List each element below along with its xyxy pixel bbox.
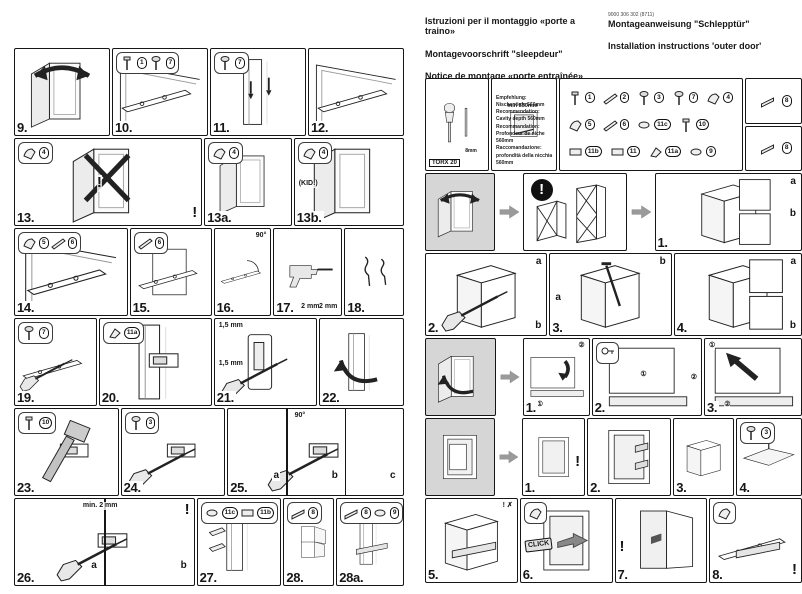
annotation: ! [620, 539, 625, 556]
illustration [17, 51, 107, 133]
step-number: 13. [17, 211, 36, 225]
step-box-26: min. 2 mm!ab26. [14, 498, 195, 586]
step-box-13a: 413a. [204, 138, 292, 226]
step-box-15: 615. [130, 228, 212, 316]
annotation: ! [97, 175, 102, 192]
step-row: ! ✗5.CLICK6.!7.!8. [425, 498, 802, 583]
part-inset: 17 [116, 52, 179, 74]
part-item: 1 [568, 90, 595, 106]
part-inset [524, 502, 547, 524]
step-box-1: ②①1. [523, 338, 590, 416]
part-inset: 89 [340, 502, 403, 524]
screw-icon [672, 90, 687, 106]
step-number: 11. [213, 121, 231, 135]
part-number-badge: 9 [706, 146, 716, 158]
step-row: ②①1.①②2.①②3. [425, 338, 802, 416]
step-number: 3. [707, 401, 719, 415]
step-number: 24. [124, 481, 143, 495]
side-part-box: 8 [745, 78, 802, 124]
recommendation-line: Recommendation: Cavity depth 560mm [496, 109, 553, 124]
part-inset: 11a [103, 322, 145, 344]
part-number-badge: 8 [782, 142, 792, 154]
panel-divider [104, 499, 106, 585]
part-item: 8 [756, 93, 792, 109]
part-number-badge: 3 [654, 92, 664, 104]
strip-icon [291, 505, 306, 521]
part-number-badge: 7 [39, 327, 49, 339]
bracket-icon [212, 145, 227, 161]
intro-box [425, 173, 495, 251]
part-number-badge: 11b [585, 146, 602, 158]
pin-icon [679, 117, 694, 133]
step-box-7: !7. [615, 498, 708, 583]
step-number: 20. [102, 391, 121, 405]
part-item: 11c [637, 117, 671, 133]
rail-icon [138, 235, 153, 251]
warning-box: ! [523, 173, 627, 251]
part-number-badge: 1 [137, 57, 147, 69]
pin-icon [120, 55, 135, 71]
illustration [428, 341, 493, 413]
step-row: 1023.324.90°abc25. [14, 408, 404, 496]
cap-icon [689, 144, 704, 160]
torx-screwdriver-icon [428, 81, 486, 168]
step-number: 2. [590, 481, 602, 495]
step-box-12: 12. [308, 48, 404, 136]
annotation: ① [640, 371, 646, 379]
pin-icon [568, 90, 583, 106]
part-inset: 3 [740, 422, 775, 444]
parts-overview-box: 123745611c1011b1111a9 [559, 78, 744, 171]
step-box-11: 711. [210, 48, 306, 136]
step-box-20: 11a20. [99, 318, 212, 406]
illustration [677, 256, 799, 333]
step-number: 10. [115, 121, 134, 135]
part-item: 11b [568, 144, 602, 160]
niche-dimensions-box: min 550mmEmpfehlung: Nischentiefe 560mmR… [491, 78, 557, 171]
cap-icon [373, 505, 388, 521]
recommendation-line: Recommandation: Profondeur de niche 560m… [496, 124, 553, 146]
part-number-badge: 1 [585, 92, 595, 104]
slider-icon [610, 144, 625, 160]
pin-icon [22, 415, 37, 431]
part-item: 9 [689, 144, 716, 160]
part-number-badge: 11c [222, 507, 239, 519]
header: Istruzioni per il montaggio «porte a tra… [425, 12, 802, 78]
step-box-28a: 8928a. [336, 498, 404, 586]
step-box-1: ab1. [655, 173, 802, 251]
part-number-badge: 4 [319, 147, 329, 159]
sub-panel-label: a [272, 471, 280, 481]
sub-panel-label: a [554, 293, 562, 303]
part-inset: 11c11b [201, 502, 278, 524]
step-box-4: ab4. [674, 253, 802, 336]
step-row: TORX 208mmmin 550mmEmpfehlung: Nischenti… [425, 78, 802, 171]
step-number: 14. [17, 301, 36, 315]
step-row: 719.11a20.1,5 mm1,5 mm21.22. [14, 318, 404, 406]
block-arrow-right-icon [629, 173, 653, 251]
step-box-2: ab2. [425, 253, 547, 336]
step-number: 22. [322, 391, 341, 405]
illustration [428, 176, 492, 248]
part-item: 3 [637, 90, 664, 106]
step-number: 13a. [207, 211, 233, 225]
right-page: Istruzioni per il montaggio «porte a tra… [425, 12, 802, 585]
sub-panel-label: a [535, 257, 543, 267]
step-number: 26. [17, 571, 36, 585]
bracket-icon [22, 235, 37, 251]
sub-panel-label: b [534, 321, 542, 331]
step-number: 7. [618, 568, 630, 582]
illustration [707, 341, 799, 413]
bracket-icon [706, 90, 721, 106]
step-box-3: ab3. [549, 253, 671, 336]
screw-icon [744, 425, 759, 441]
part-number-badge: 3 [761, 427, 771, 439]
annotation: ! [575, 454, 580, 471]
step-box-5: ! ✗5. [425, 498, 518, 583]
strip-icon [344, 505, 359, 521]
step-box-10: 1710. [112, 48, 208, 136]
step-number: 5. [428, 568, 440, 582]
part-number-badge: 8 [782, 95, 792, 107]
parts-grid: 123745611c1011b1111a9 [562, 81, 741, 168]
sub-panel-label: b [789, 321, 797, 331]
illustration [428, 256, 544, 333]
part-number-badge: 7 [689, 92, 699, 104]
step-number: 27. [200, 571, 219, 585]
step-box-25: 90°abc25. [227, 408, 404, 496]
sub-panel-label: b [659, 257, 667, 267]
step-box-8: !8. [709, 498, 802, 583]
step-number: 3. [676, 481, 688, 495]
sub-panel-label: a [789, 177, 797, 187]
title-italian: Istruzioni per il montaggio «porte a tra… [425, 16, 605, 37]
cap-icon [205, 505, 220, 521]
part-number-badge: 8 [308, 507, 318, 519]
step-number: 4. [739, 481, 751, 495]
recommendation-line: Raccomandazione: profondità della nicchi… [496, 145, 553, 167]
bracket-icon [528, 505, 543, 521]
part-number-badge: 11 [627, 146, 640, 158]
sub-panel-label: b [180, 561, 188, 571]
right-page-steps: TORX 208mmmin 550mmEmpfehlung: Nischenti… [425, 78, 802, 583]
step-row: !1.2.3.34. [425, 418, 802, 496]
part-number-badge: 3 [146, 417, 156, 429]
part-item: 6 [603, 117, 630, 133]
step-number: 16. [217, 301, 236, 315]
step-number: 6. [523, 568, 535, 582]
step-number: 18. [347, 301, 366, 315]
screw-icon [637, 90, 652, 106]
sub-panel-label: c [389, 471, 397, 481]
step-row: !ab1. [425, 173, 802, 251]
part-inset [596, 342, 619, 364]
step-box-3: 3. [673, 418, 734, 496]
title-dutch: Montagevoorschrift "sleepdeur" [425, 49, 605, 59]
part-item: 7 [672, 90, 699, 106]
annotation: 1,5 mm [219, 322, 243, 330]
annotation: 90° [295, 412, 306, 420]
annotation: 90° [256, 232, 267, 240]
step-box-23: 1023. [14, 408, 119, 496]
step-number: 13b. [297, 211, 324, 225]
annotation: min. 2 mm [83, 502, 118, 510]
part-number-badge: 4 [229, 147, 239, 159]
bit-size-label: 8mm [465, 148, 477, 154]
side-part-box: 8 [745, 126, 802, 172]
step-number: 25. [230, 481, 249, 495]
illustration [230, 411, 401, 493]
part-inset: 10 [18, 412, 56, 434]
document-code: 9000 306 302 (8711) [608, 12, 802, 18]
part-number-badge: 6 [620, 119, 630, 131]
intro-box [425, 338, 496, 416]
screw-icon [22, 325, 37, 341]
panel-divider [286, 409, 288, 495]
step-number: 21. [217, 391, 236, 405]
header-right-column: 9000 306 302 (8711) Montageanweisung "Sc… [608, 12, 802, 64]
left-page: 9.1710.711.12.4!!13.413a.4(KID!)13b.5614… [14, 48, 404, 588]
part-number-badge: 7 [235, 57, 245, 69]
rail-icon [51, 235, 66, 251]
panel-divider [345, 409, 347, 495]
step-row: ab2.ab3.ab4. [425, 253, 802, 336]
part-number-badge: 6 [68, 237, 78, 249]
part-item: 10 [679, 117, 709, 133]
step-number: 12. [311, 121, 330, 135]
part-number-badge: 4 [723, 92, 733, 104]
part-number-badge: 5 [585, 119, 595, 131]
part-inset: 6 [134, 232, 169, 254]
intro-box [425, 418, 495, 496]
annotation: ② [691, 374, 697, 382]
annotation: ! [185, 502, 190, 519]
step-box-24: 324. [121, 408, 226, 496]
block-arrow-right-icon [498, 338, 521, 416]
screw-icon [149, 55, 164, 71]
step-number: 2. [428, 321, 440, 335]
parts-side-column: 88 [745, 78, 802, 171]
part-inset: 7 [18, 322, 53, 344]
part-inset: 56 [18, 232, 81, 254]
step-number: 1. [526, 401, 538, 415]
step-number: 4. [677, 321, 689, 335]
part-number-badge: 11b [257, 507, 274, 519]
step-box-22: 22. [319, 318, 404, 406]
part-number-badge: 11a [124, 327, 141, 339]
part-inset: 8 [287, 502, 322, 524]
step-box-1: !1. [522, 418, 585, 496]
step-number: 1. [658, 236, 670, 250]
step-row: 9.1710.711.12. [14, 48, 404, 136]
step-box-6: CLICK6. [520, 498, 613, 583]
annotation: 2 mm [319, 303, 337, 311]
part-number-badge: 2 [620, 92, 630, 104]
annotation: 1,5 mm [219, 360, 243, 368]
part-number-badge: 11c [654, 119, 671, 131]
step-row: 4!!13.413a.4(KID!)13b. [14, 138, 404, 226]
part-item: 5 [568, 117, 595, 133]
annotation: ② [578, 342, 584, 350]
part-number-badge: 5 [39, 237, 49, 249]
sub-panel-label: b [789, 209, 797, 219]
slider-icon [568, 144, 583, 160]
sub-panel-label: b [331, 471, 339, 481]
screw-icon [129, 415, 144, 431]
illustration [428, 421, 492, 493]
step-box-14: 5614. [14, 228, 128, 316]
title-german: Montageanweisung "Schlepptür" [608, 19, 802, 29]
illustration [552, 256, 668, 333]
step-row: 5614.615.90°16.2 mm2 mm17.18. [14, 228, 404, 316]
annotation: ① [709, 342, 715, 350]
part-item: 11a [648, 144, 682, 160]
step-number: 2. [595, 401, 607, 415]
step-number: 28a. [339, 571, 365, 585]
rail-icon [603, 117, 618, 133]
part-number-badge: 10 [696, 119, 709, 131]
bracket-icon [22, 145, 37, 161]
part-item: 4 [706, 90, 733, 106]
step-row: min. 2 mm!ab26.11c11b27.828.8928a. [14, 498, 404, 586]
bracket-icon [717, 505, 732, 521]
tool-label: TORX 20 [429, 159, 460, 167]
annotation: (KID!) [299, 180, 318, 188]
step-number: 8. [712, 568, 724, 582]
step-box-17: 2 mm2 mm17. [273, 228, 342, 316]
block-arrow-right-icon [497, 173, 521, 251]
part-number-badge: 10 [39, 417, 52, 429]
annotation: 2 mm [301, 303, 319, 311]
step-box-13b: 4(KID!)13b. [294, 138, 404, 226]
part-number-badge: 7 [166, 57, 176, 69]
clip-icon [648, 144, 663, 160]
illustration [658, 176, 799, 248]
step-box-18: 18. [344, 228, 404, 316]
recommendation-line: Empfehlung: Nischentiefe 560mm [496, 95, 553, 110]
sub-panel-label: a [789, 257, 797, 267]
illustration [618, 501, 705, 580]
part-number-badge: 11a [665, 146, 682, 158]
part-item: 8 [756, 140, 792, 156]
step-box-13: 4!!13. [14, 138, 202, 226]
title-english: Installation instructions 'outer door' [608, 41, 802, 51]
part-number-badge: 4 [39, 147, 49, 159]
clip-icon [107, 325, 122, 341]
cap-icon [637, 117, 652, 133]
step-box-16: 90°16. [214, 228, 272, 316]
tools-box: TORX 208mm [425, 78, 489, 171]
step-number: 19. [17, 391, 36, 405]
part-inset: 7 [214, 52, 249, 74]
part-item: 11 [610, 144, 640, 160]
step-number: 15. [133, 301, 152, 315]
part-number-badge: 9 [390, 507, 400, 519]
step-box-2: ①②2. [592, 338, 702, 416]
step-box-19: 719. [14, 318, 97, 406]
step-box-9: 9. [14, 48, 110, 136]
part-inset: 4 [18, 142, 53, 164]
step-number: 9. [17, 121, 29, 135]
strip-icon [756, 93, 780, 109]
screw-icon [218, 55, 233, 71]
part-inset: 3 [125, 412, 160, 434]
sub-panel-label: a [90, 561, 98, 571]
niche-recommendations: Empfehlung: Nischentiefe 560mmRecommenda… [496, 95, 553, 168]
step-box-4: 34. [736, 418, 802, 496]
part-inset: 4 [208, 142, 243, 164]
part-number-badge: 8 [361, 507, 371, 519]
block-arrow-right-icon [497, 418, 520, 496]
scanned-manual-sheet: 9.1710.711.12.4!!13.413a.4(KID!)13b.5614… [0, 0, 802, 594]
bracket-icon [302, 145, 317, 161]
slider-icon [240, 505, 255, 521]
rail-icon [603, 90, 618, 106]
step-box-2: 2. [587, 418, 671, 496]
step-number: 3. [552, 321, 564, 335]
step-number: 1. [525, 481, 537, 495]
annotation: ! [192, 205, 197, 222]
illustration [428, 501, 515, 580]
annotation: ! ✗ [503, 502, 513, 510]
key-icon [600, 345, 615, 361]
part-inset: 4 [298, 142, 333, 164]
step-number: 17. [276, 301, 295, 315]
step-number: 23. [17, 481, 36, 495]
annotation: ! [792, 562, 797, 579]
annotation: ② [724, 401, 730, 409]
part-number-badge: 6 [155, 237, 165, 249]
step-number: 28. [286, 571, 305, 585]
step-box-27: 11c11b27. [197, 498, 282, 586]
bracket-icon [568, 117, 583, 133]
strip-icon [756, 140, 780, 156]
step-box-21: 1,5 mm1,5 mm21. [214, 318, 318, 406]
exclamation-icon: ! [531, 179, 553, 201]
step-box-3: ①②3. [704, 338, 802, 416]
part-item: 2 [603, 90, 630, 106]
part-inset [713, 502, 736, 524]
step-box-28: 828. [283, 498, 334, 586]
